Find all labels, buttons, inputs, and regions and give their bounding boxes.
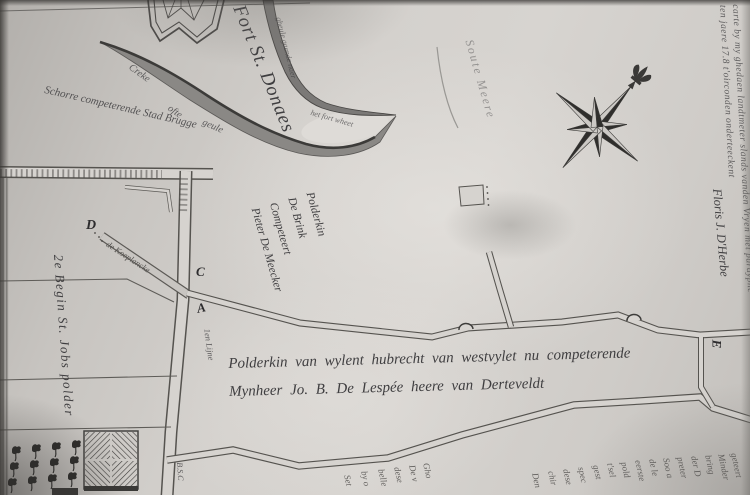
polder-column-label: 2e Begin St. Jobs polder: [50, 254, 77, 417]
bottom-fragment: Gho: [421, 462, 434, 479]
bottom-fragment: by o: [359, 470, 372, 487]
map-labels-layer: Fort St. Donaes Schorre competerende Sta…: [0, 0, 750, 495]
linie-label: 1en Lijne: [202, 328, 216, 361]
main-inscription: Polderkin van wylent hubrecht van westvy…: [228, 339, 632, 406]
bottom-fragment: spec: [576, 466, 589, 484]
marker-d: D: [86, 218, 96, 234]
bottom-fragment: Soo a: [661, 457, 675, 479]
bsc-label: B.S.C: [175, 462, 185, 481]
bottom-fragment: geteert: [729, 452, 744, 479]
bottom-fragment: pold: [619, 461, 632, 479]
faint-water-label: Soute Meere: [462, 38, 499, 121]
bottom-fragment: Set: [342, 474, 354, 487]
bottom-fragment: bring: [703, 454, 717, 475]
bottom-fragment: gest: [591, 464, 604, 480]
bottom-fragment: dese: [561, 468, 574, 486]
koeplancke-label: de Koeplancke: [105, 239, 153, 275]
bottom-fragment: Den: [530, 472, 543, 489]
creek-label-a: Creke: [127, 62, 152, 85]
bottom-fragment: t'sel: [605, 462, 618, 478]
marker-e: E: [708, 340, 724, 349]
creek-label-c: geule: [201, 117, 225, 136]
manuscript-polder-map: Fort St. Donaes Schorre competerende Sta…: [0, 0, 750, 495]
bottom-fragment: preter: [675, 456, 689, 479]
bottom-fragment: dese: [392, 466, 405, 484]
channel-lower-label: het fort wheet: [310, 108, 355, 129]
bottom-fragment: eerste: [633, 459, 647, 482]
bottom-fragment: De v: [407, 464, 420, 482]
bottom-fragment: belle: [376, 468, 389, 487]
bottom-fragment: der D: [689, 455, 703, 477]
bottom-fragment: de le: [647, 458, 660, 477]
channel-upper-label: gheule gaende naer: [274, 16, 298, 79]
marker-c: C: [196, 264, 205, 280]
bottom-fragment: chir: [546, 470, 559, 486]
marker-a: A: [195, 299, 207, 316]
brink-block: Polderkin De Brink Competeert Pieter De …: [245, 190, 342, 294]
